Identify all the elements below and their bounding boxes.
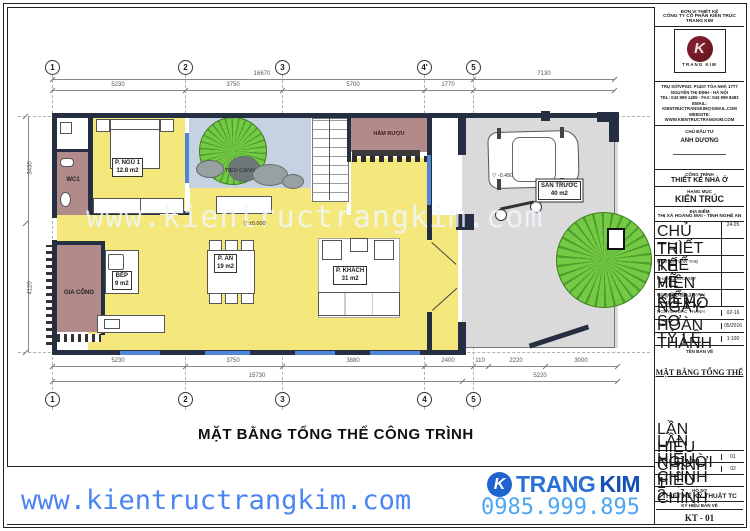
tb-staff-row: VẼNGUYỄN ĐẮC THẠNH: [655, 273, 744, 290]
tb-docno: 02-16: [721, 310, 744, 316]
dining-chair-5: [225, 293, 238, 304]
dim-top-seg-1: 5230: [111, 82, 124, 88]
rock-4: [282, 174, 304, 189]
bar-stools: [352, 156, 427, 162]
yard-top-wall: [465, 113, 615, 118]
dining-area: 19 m2: [217, 264, 234, 272]
side-table: [350, 238, 368, 252]
work-room-top-wall: [57, 241, 105, 245]
car-wheel-2: [560, 127, 564, 138]
bar-floor: [351, 158, 427, 216]
dim-left-1: 3430: [28, 161, 34, 174]
logo-k-icon: K: [687, 36, 713, 62]
dim-top-total-line: [52, 79, 615, 80]
wc-top-wall: [57, 149, 88, 152]
brand-logo: K TRANGKIM: [487, 471, 640, 498]
sink-icon: [60, 158, 74, 167]
tb-address-4: EMAIL: KIENTRUCTRANGKIM@GMAIL.COM: [656, 101, 743, 112]
brand-text-2: KIM: [599, 471, 640, 498]
tb-address-5: WEBSITE: WWW.KIENTRUCTRANGKIM.COM: [656, 112, 743, 123]
window-bottom-4: [370, 351, 420, 355]
footer-website-link[interactable]: www.kientructrangkim.com: [21, 485, 411, 516]
kitchen-name: BẾP: [115, 273, 129, 281]
sofa: [318, 292, 400, 316]
level-yard: ▽ -0.450: [492, 173, 513, 179]
window-bottom-3: [295, 351, 335, 355]
revision-value: 01: [721, 454, 744, 460]
wine-label: HẦM RƯỢU: [373, 131, 404, 137]
dim-bot-seg-7: 3000: [574, 358, 587, 364]
nightstand-2: [160, 119, 174, 132]
level-yard-value: -0.450: [498, 173, 514, 179]
tb-project-section: CÔNG TRÌNH THIẾT KẾ NHÀ Ở: [655, 170, 744, 187]
wc-label: WC1: [66, 177, 79, 183]
brand-text-1: TRANG: [516, 471, 595, 498]
window-bottom-2: [205, 351, 250, 355]
front-window: [427, 155, 431, 205]
grid-bubble-bottom-5: 5: [466, 392, 481, 407]
tb-date: 05/2016: [721, 323, 744, 329]
yard-bottom-line: [462, 347, 615, 348]
dining-label: P. ĂN 19 m2: [214, 254, 237, 273]
outer-wall-left-b: [52, 240, 57, 355]
grid-bubble-top-5: 5: [466, 60, 481, 75]
yard-label: SÂN TRƯỚC 40 m2: [538, 181, 581, 200]
tb-address-1: TRỤ SỞ/VPGD: P1407 TÒA NHÀ 17T7: [656, 84, 743, 90]
armchair-1: [322, 240, 342, 260]
mid-pillar: [456, 214, 474, 230]
nightstand-1: [96, 119, 110, 132]
gate-post: [541, 111, 550, 121]
car-wheel-1: [497, 128, 501, 139]
level-zero-value: ±0.000: [249, 221, 266, 227]
wardrobe: [93, 198, 141, 214]
dim-bot-seg-1: 5230: [111, 358, 124, 364]
grid-bubble-bottom-2: 2: [178, 392, 193, 407]
tree-swing-icon: [607, 228, 625, 250]
tb-category: KIẾN TRÚC: [656, 194, 743, 204]
tb-dossier-section: HỒ SƠ THIẾT KẾ KỸ THUẬT TC: [655, 487, 744, 502]
dim-bot-seg-5: 110: [475, 358, 485, 364]
grid-bubble-bottom-3: 3: [275, 392, 290, 407]
dim-top-seg-line: [52, 90, 615, 91]
outer-wall-right-b: [458, 322, 466, 355]
outer-wall-right-a: [458, 113, 466, 155]
dim-top-total: 16670: [254, 71, 271, 77]
tb-company-section: ĐƠN VỊ THIẾT KẾ CÔNG TY CỔ PHẦN KIẾN TRÚ…: [655, 7, 744, 27]
outer-wall-top: [52, 113, 465, 118]
living-label: P. KHÁCH 31 m2: [333, 266, 367, 285]
dim-top-seg-4: 1770: [441, 82, 454, 88]
tb-investor-label: CHỦ ĐẦU TƯ: [655, 129, 744, 134]
tb-drawing-name-label: TÊN BẢN VẼ: [655, 349, 744, 354]
bed-pillow: [110, 119, 160, 130]
tb-logo-section: K TRANG KIM: [655, 27, 744, 82]
tb-scale: 1:100: [721, 336, 744, 342]
company-logo: K TRANG KIM: [674, 29, 726, 73]
dining-chair-4: [209, 293, 222, 304]
washer-icon: [60, 122, 72, 134]
tb-investor: ANH DƯƠNG: [655, 138, 744, 144]
dim-bot-seg-6: 2220: [509, 358, 522, 364]
living-name: P. KHÁCH: [336, 268, 364, 276]
outer-wall-left-a: [52, 113, 57, 218]
stove-icon: [108, 254, 124, 270]
stair-wine-wall: [347, 118, 351, 162]
dim-bot-total-2: 5220: [533, 373, 546, 379]
tb-category-section: HẠNG MỤC KIẾN TRÚC: [655, 187, 744, 207]
front-wall-lower: [427, 312, 432, 352]
dim-top-seg-2: 3750: [226, 82, 239, 88]
garden-label: TIỂU CẢNH: [225, 168, 255, 174]
bedroom-glass-window: [185, 133, 189, 183]
staff-note: 24.05: [721, 222, 744, 238]
staircase: [312, 118, 349, 202]
staff-note: [721, 239, 744, 255]
tb-staff-row: THIẾT KẾPHAN QUỐC VIỆT: [655, 239, 744, 256]
bedroom-label: P. NGỦ 1 12.8 m2: [112, 158, 143, 177]
work-room-hatch: [57, 334, 101, 342]
grid-bubble-bottom-4: 4: [417, 392, 432, 407]
dim-bot-seg-2: 3750: [226, 358, 239, 364]
level-zero: ▽ ±0.000: [243, 221, 266, 227]
window-bottom-1: [120, 351, 160, 355]
rock-1: [196, 160, 224, 178]
tb-address-3: TEL: 043 999 1485 - FAX: 043 999 8483: [656, 95, 743, 101]
tb-company: CÔNG TY CỔ PHẦN KIẾN TRÚC TRANG KIM: [656, 14, 743, 24]
tb-location: THỊ XÃ HOÀNG MAI - TỈNH NGHỆ AN: [656, 214, 743, 219]
dim-bottom-total-line: [52, 381, 618, 382]
grid-bubble-bottom-1: 1: [45, 392, 60, 407]
stair-foot-floor: [311, 200, 347, 217]
dim-bot-seg-3: 3880: [346, 358, 359, 364]
bedroom-area: 12.8 m2: [115, 168, 140, 176]
tb-staff-row: CHỦ TRÌNGUYỄN VĂN THỌ 24.05: [655, 222, 744, 239]
dim-bottom-seg-line: [52, 366, 618, 367]
staff-note: [721, 290, 744, 306]
title-block: ĐƠN VỊ THIẾT KẾ CÔNG TY CỔ PHẦN KIẾN TRÚ…: [654, 7, 744, 524]
drawing-sheet: www.kientructrangkim.com WC1 P. NGỦ 1 12…: [0, 0, 750, 531]
tb-staff-row: THỂ HIỆNVŨ QUỐC OANH: [655, 256, 744, 273]
tb-investor-section: CHỦ ĐẦU TƯ ANH DƯƠNG: [655, 126, 744, 170]
work-label: GIA CÔNG: [64, 290, 94, 296]
living-area: 31 m2: [336, 276, 364, 284]
dim-left-line: [28, 116, 29, 352]
yard-corner-pillar-b: [609, 112, 619, 142]
kitchen-label: BẾP 9 m2: [112, 271, 132, 290]
dim-top-right: 7130: [537, 71, 550, 77]
revision-value: 02: [721, 466, 744, 472]
logo-text: TRANG KIM: [682, 62, 717, 67]
work-room-floor: [57, 244, 101, 332]
footer-bar: www.kientructrangkim.com K TRANGKIM 0985…: [7, 466, 654, 524]
moto-wheel-1: [495, 209, 507, 221]
dim-top-seg-3: 5700: [346, 82, 359, 88]
armchair-2: [374, 240, 394, 260]
grid-bubble-top-1: 1: [45, 60, 60, 75]
stair-rail: [329, 118, 330, 200]
kitchen-sink-icon: [104, 319, 120, 329]
tb-code: KT - 01: [656, 513, 743, 523]
plan-canvas: www.kientructrangkim.com WC1 P. NGỦ 1 12…: [0, 0, 654, 460]
tb-signature-line: [673, 154, 726, 155]
tb-address-section: TRỤ SỞ/VPGD: P1407 TÒA NHÀ 17T7 NGUYỄN T…: [655, 82, 744, 126]
tb-dossier: THIẾT KẾ KỸ THUẬT TC: [656, 493, 743, 500]
yard-name: SÂN TRƯỚC: [541, 183, 578, 191]
brand-k-icon: K: [487, 472, 512, 497]
car-wheel-3: [497, 179, 501, 190]
tb-project: THIẾT KẾ NHÀ Ở: [656, 177, 743, 184]
staff-note: [721, 256, 744, 272]
tb-location-section: ĐỊA ĐIỂM THỊ XÃ HOÀNG MAI - TỈNH NGHỆ AN: [655, 207, 744, 222]
grid-bubble-top-2: 2: [178, 60, 193, 75]
grid-bubble-top-3: 3: [275, 60, 290, 75]
footer-phone: 0985.999.895: [481, 495, 640, 520]
tb-scale-row: TỶ LỆ 1:100: [655, 333, 744, 346]
car-cabin: [512, 137, 556, 182]
hall-sideboard: [216, 196, 272, 214]
tb-code-label: KÝ HIỆU BẢN VẼ: [656, 503, 743, 510]
plan-title: MẶT BẰNG TỔNG THỂ CÔNG TRÌNH: [198, 426, 474, 443]
bedroom-name: P. NGỦ 1: [115, 160, 140, 168]
toilet-icon: [60, 192, 71, 207]
dim-bot-total-1: 15730: [249, 373, 266, 379]
dining-chair-3: [241, 240, 254, 251]
dining-chair-6: [241, 293, 254, 304]
dining-chair-1: [209, 240, 222, 251]
dim-left-2: 4120: [28, 281, 34, 294]
tb-revision-row: NGƯỜI HIỆU CHỈNH: [655, 475, 744, 487]
kitchen-area: 9 m2: [115, 281, 129, 289]
dining-name: P. ĂN: [217, 256, 234, 264]
grid-bubble-top-4: 4': [417, 60, 432, 75]
yard-area: 40 m2: [541, 191, 578, 199]
dresser: [140, 198, 184, 214]
dining-chair-2: [225, 240, 238, 251]
tb-drawing-name: MẶT BẰNG TỔNG THỂ: [655, 368, 744, 377]
yard-tree: [556, 212, 652, 308]
tb-code-section: KÝ HIỆU BẢN VẼ KT - 01: [655, 502, 744, 524]
staff-note: [721, 273, 744, 289]
dim-bot-seg-4: 2400: [441, 358, 454, 364]
